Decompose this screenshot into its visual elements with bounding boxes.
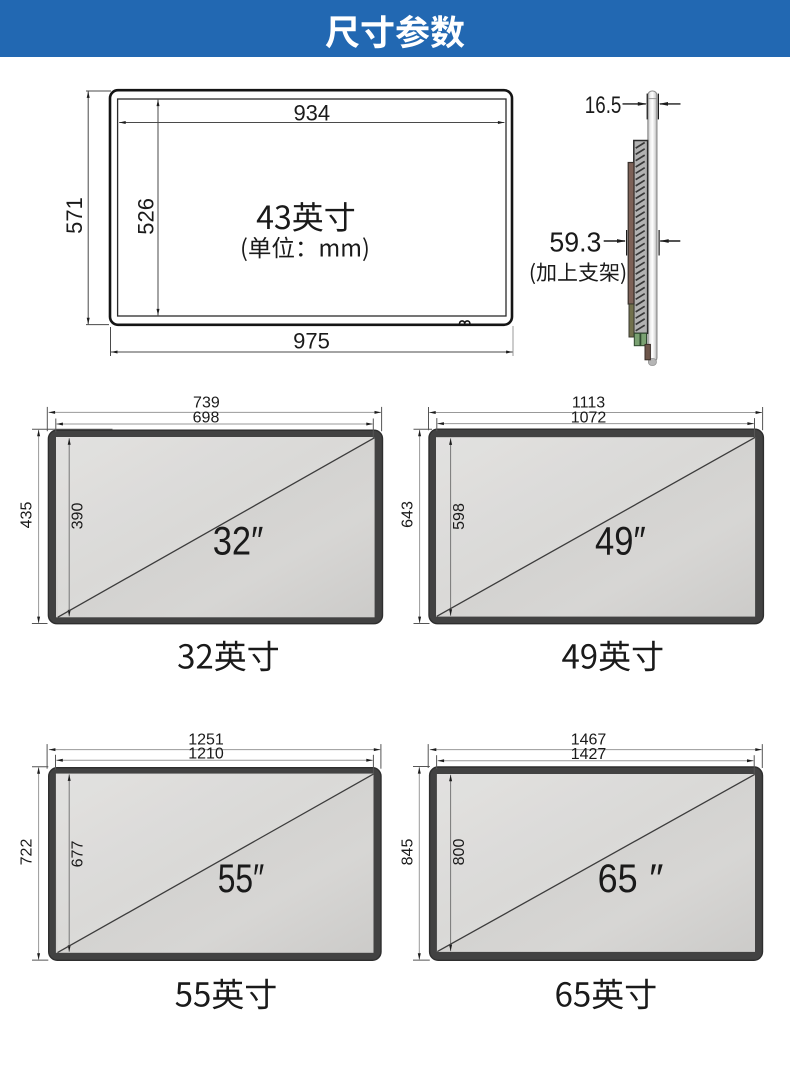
svg-text:975: 975 <box>293 329 330 354</box>
svg-text:677: 677 <box>70 841 87 868</box>
svg-text:16.5: 16.5 <box>585 92 622 119</box>
svg-text:65: 65 <box>598 857 638 901</box>
svg-text:390: 390 <box>70 503 87 530</box>
svg-text:571: 571 <box>62 197 87 234</box>
svg-text:643: 643 <box>400 501 417 528</box>
svg-text:526: 526 <box>134 198 159 235</box>
svg-text:722: 722 <box>19 839 36 866</box>
svg-text:1072: 1072 <box>571 409 607 426</box>
svg-text:1427: 1427 <box>571 746 607 763</box>
svg-text:32″: 32″ <box>213 520 264 564</box>
svg-text:49″: 49″ <box>595 520 646 564</box>
svg-text:1210: 1210 <box>188 746 224 763</box>
svg-text:800: 800 <box>451 839 468 866</box>
svg-text:435: 435 <box>18 502 35 529</box>
svg-text:698: 698 <box>193 409 220 426</box>
svg-text:845: 845 <box>399 839 416 866</box>
svg-text:59.3: 59.3 <box>549 227 601 258</box>
svg-text:598: 598 <box>451 503 468 530</box>
svg-text:55″: 55″ <box>218 857 265 901</box>
svg-text:934: 934 <box>293 101 330 126</box>
svg-text:″: ″ <box>649 857 663 901</box>
